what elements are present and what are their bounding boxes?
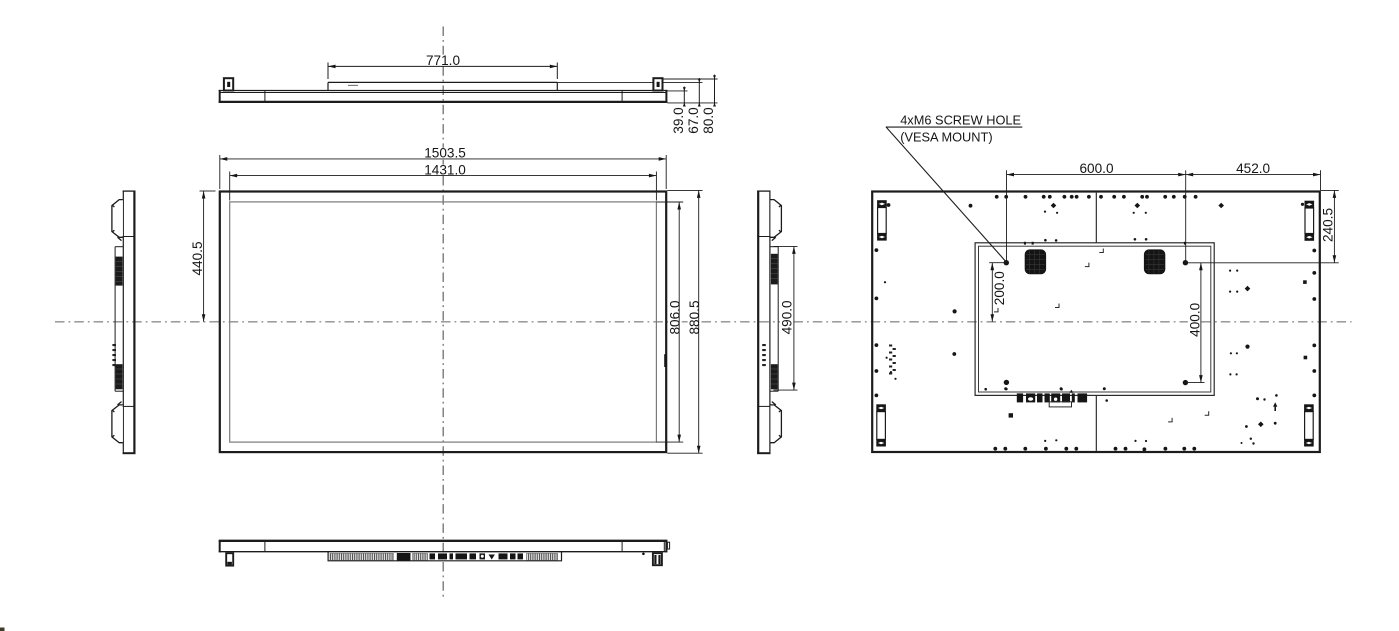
svg-text:1431.0: 1431.0 xyxy=(424,162,466,177)
svg-text:452.0: 452.0 xyxy=(1236,161,1270,176)
svg-text:(VESA MOUNT): (VESA MOUNT) xyxy=(900,130,992,145)
svg-text:4xM6 SCREW HOLE: 4xM6 SCREW HOLE xyxy=(900,113,1021,128)
svg-text:67.0: 67.0 xyxy=(686,107,701,134)
svg-text:240.5: 240.5 xyxy=(1320,208,1335,242)
svg-text:200.0: 200.0 xyxy=(992,271,1007,305)
svg-text:600.0: 600.0 xyxy=(1079,161,1113,176)
svg-text:880.5: 880.5 xyxy=(687,300,702,334)
svg-text:806.0: 806.0 xyxy=(667,300,682,334)
svg-text:490.0: 490.0 xyxy=(780,300,795,334)
svg-text:440.5: 440.5 xyxy=(190,241,205,275)
svg-text:39.0: 39.0 xyxy=(671,107,686,134)
svg-text:80.0: 80.0 xyxy=(701,107,716,134)
svg-text:771.0: 771.0 xyxy=(426,53,460,68)
svg-text:1503.5: 1503.5 xyxy=(424,146,466,161)
svg-text:400.0: 400.0 xyxy=(1187,302,1202,336)
